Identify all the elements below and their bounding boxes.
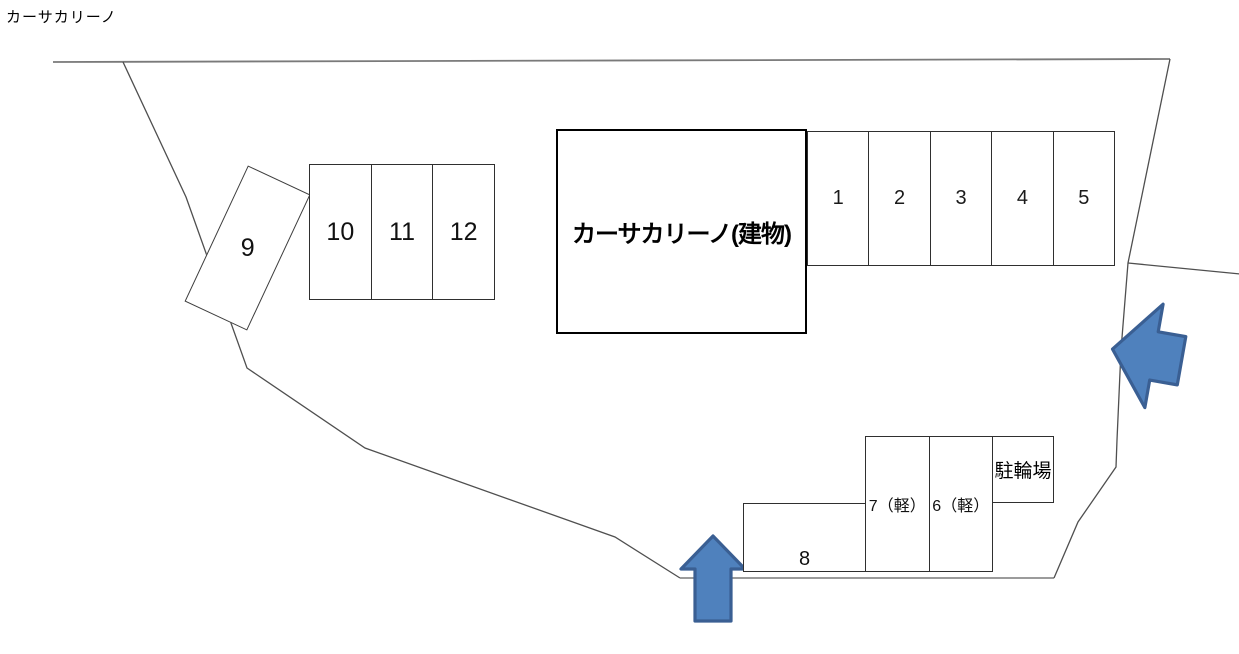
parking-row-kei: 7（軽） 6（軽） [865,436,993,572]
parking-space-1: 1 [808,132,869,265]
parking-space-label: 11 [389,218,415,247]
parking-space-label: 7（軽） [869,492,926,516]
parking-space-label: 9 [241,234,255,263]
boundary-spur-line [1128,263,1239,274]
parking-space-label: 4 [1017,187,1028,210]
parking-space-4: 4 [992,132,1053,265]
parking-space-label: 10 [326,218,354,247]
entrance-arrow-left-icon [1103,297,1190,413]
parking-space-5: 5 [1054,132,1114,265]
page-title: カーサカリーノ [6,6,117,27]
parking-space-11: 11 [372,165,434,299]
building-label: カーサカリーノ(建物) [572,214,791,249]
parking-space-12: 12 [433,165,494,299]
bicycle-parking-area: 駐輪場 [992,436,1054,503]
boundary-top-line [53,59,1170,62]
parking-space-label: 1 [833,187,844,210]
building-outline: カーサカリーノ(建物) [556,129,807,334]
parking-row-1-5: 1 2 3 4 5 [807,131,1115,266]
parking-space-label: 5 [1078,187,1089,210]
parking-space-label: 8 [799,549,810,571]
parking-space-7-kei: 7（軽） [866,437,930,571]
parking-space-label: 6（軽） [932,492,989,516]
parking-space-label: 12 [450,218,478,247]
parking-space-10: 10 [310,165,372,299]
bicycle-parking-label: 駐輪場 [994,456,1051,483]
parking-space-6-kei: 6（軽） [930,437,993,571]
parking-space-8: 8 [743,503,866,572]
parking-space-label: 2 [894,187,905,210]
site-plan: カーサカリーノ 9 10 11 12 カーサカリーノ(建物) 1 2 3 4 [0,0,1239,654]
parking-space-3: 3 [931,132,992,265]
parking-space-label: 3 [955,187,966,210]
parking-row-10-12: 10 11 12 [309,164,495,300]
parking-space-2: 2 [869,132,930,265]
